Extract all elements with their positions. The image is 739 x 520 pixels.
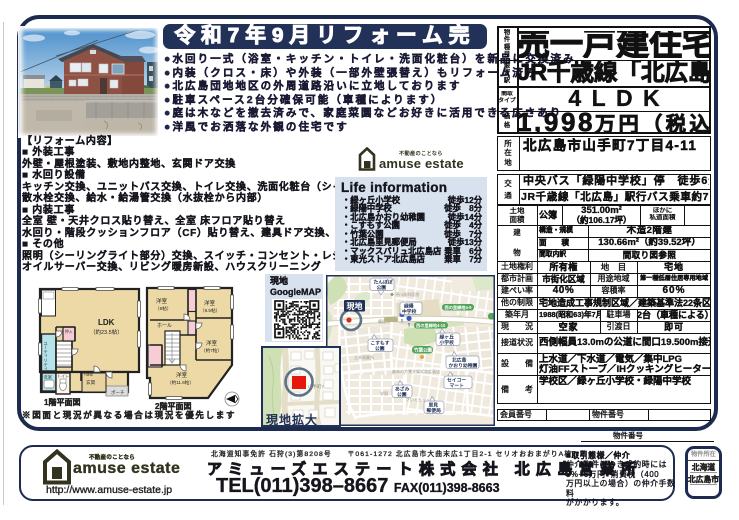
svg-text:洋室: 洋室 bbox=[204, 299, 216, 307]
svg-text:ホール: ホール bbox=[157, 323, 172, 329]
svg-text:公園: 公園 bbox=[377, 284, 387, 291]
svg-text:（6帖）: （6帖） bbox=[155, 305, 171, 312]
svg-text:たんぽぽ: たんぽぽ bbox=[374, 279, 393, 286]
svg-text:里見: 里見 bbox=[429, 402, 439, 409]
svg-text:現地: 現地 bbox=[347, 301, 363, 311]
svg-text:洋室: 洋室 bbox=[206, 339, 218, 347]
svg-text:北広島: 北広島 bbox=[452, 357, 467, 364]
svg-text:（6.5帖）: （6.5帖） bbox=[200, 307, 220, 314]
svg-text:玄関: 玄関 bbox=[86, 379, 96, 386]
svg-text:マート: マート bbox=[450, 383, 465, 389]
svg-text:（約23.5帖）: （約23.5帖） bbox=[90, 328, 123, 336]
svg-text:ユーティリティ: ユーティリティ bbox=[44, 341, 49, 371]
svg-text:（約7帖）: （約7帖） bbox=[201, 347, 222, 354]
svg-text:公園: 公園 bbox=[375, 345, 385, 352]
svg-text:セイコー: セイコー bbox=[447, 378, 466, 384]
svg-text:西の里緑地4-10: 西の里緑地4-10 bbox=[416, 322, 446, 329]
svg-text:緑陽: 緑陽 bbox=[404, 303, 414, 310]
svg-text:amuse estate: amuse estate bbox=[379, 156, 464, 171]
svg-text:竹葉公園: 竹葉公園 bbox=[413, 347, 432, 354]
svg-text:下駄箱: 下駄箱 bbox=[83, 372, 93, 377]
svg-text:◆ 恵川歯科医院: ◆ 恵川歯科医院 bbox=[390, 291, 419, 297]
svg-text:かおり幼稚園: かおり幼稚園 bbox=[449, 362, 478, 369]
svg-text:LDK: LDK bbox=[98, 318, 115, 327]
svg-text:洋室: 洋室 bbox=[176, 371, 188, 379]
svg-text:トイレ: トイレ bbox=[57, 374, 69, 379]
svg-text:緑ヶ丘: 緑ヶ丘 bbox=[440, 334, 455, 341]
svg-text:公園: 公園 bbox=[397, 391, 407, 398]
svg-text:現地拡大: 現地拡大 bbox=[266, 412, 318, 427]
svg-text:あざみ: あざみ bbox=[395, 386, 410, 393]
svg-text:こすもす: こすもす bbox=[371, 340, 390, 347]
svg-text:小学校: 小学校 bbox=[439, 339, 455, 346]
svg-text:学園: 学園 bbox=[380, 390, 388, 396]
svg-text:西の里緑地4-9: 西の里緑地4-9 bbox=[445, 304, 473, 311]
svg-text:森林の方書文架式北広島店: 森林の方書文架式北広島店 bbox=[392, 368, 440, 374]
svg-text:（約11.6帖）: （約11.6帖） bbox=[167, 379, 194, 386]
svg-text:中学校: 中学校 bbox=[402, 308, 417, 315]
svg-text:洗室: 洗室 bbox=[44, 374, 52, 381]
svg-text:郵便局: 郵便局 bbox=[427, 407, 442, 414]
svg-text:土木現業所: 土木現業所 bbox=[354, 354, 374, 360]
svg-text:ポーチ: ポーチ bbox=[111, 389, 125, 395]
svg-text:洋室: 洋室 bbox=[156, 297, 168, 305]
svg-text:押入: 押入 bbox=[65, 329, 73, 334]
svg-text:山手町7: 山手町7 bbox=[308, 383, 324, 390]
